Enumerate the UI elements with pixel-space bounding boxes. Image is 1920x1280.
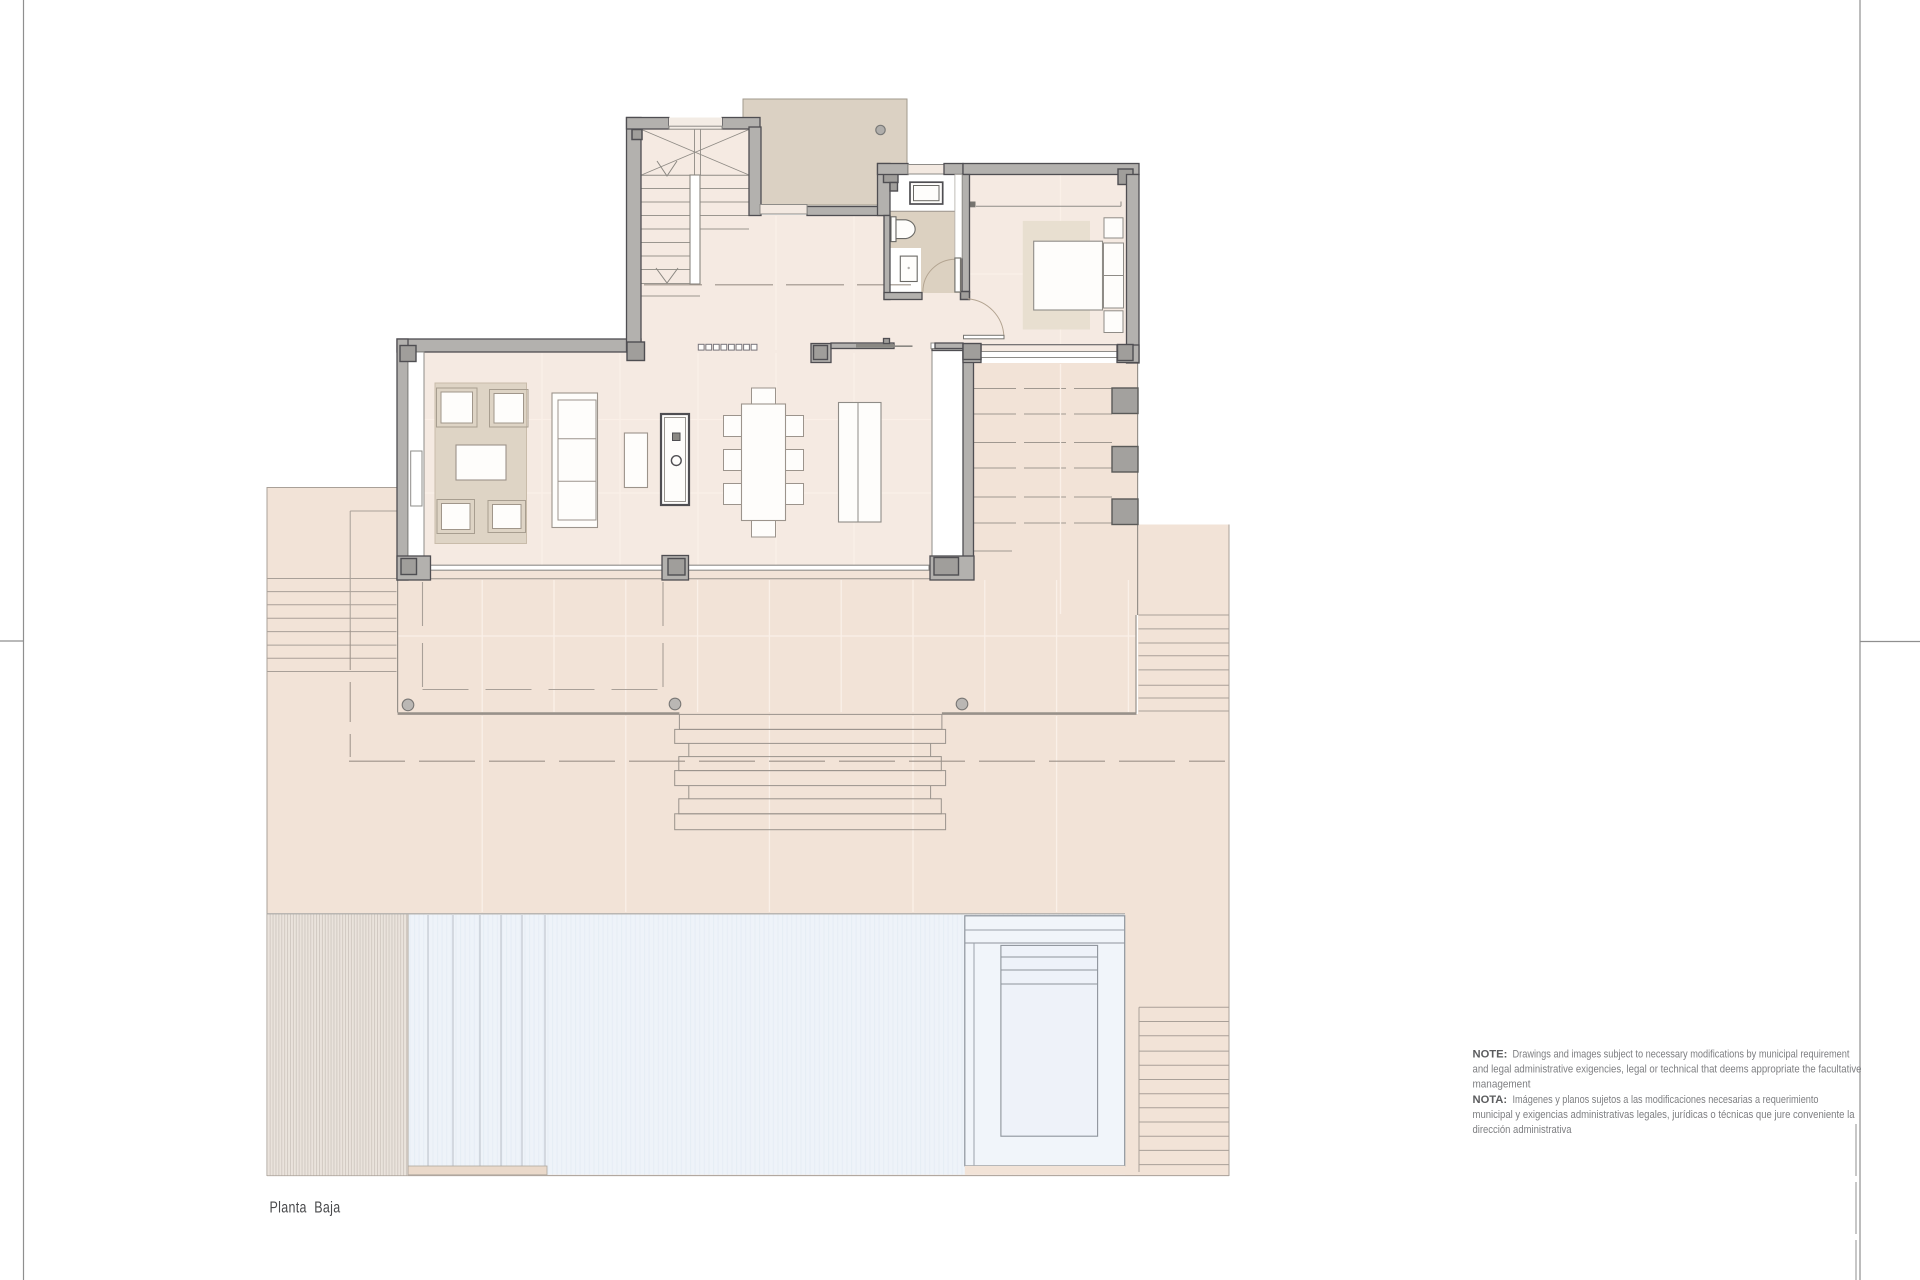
svg-text:NOTA:: NOTA: xyxy=(1473,1094,1508,1106)
svg-text:Drawings and images subject to: Drawings and images subject to necessary… xyxy=(1513,1049,1851,1061)
svg-text:municipal y exigencias adminis: municipal y exigencias administrativas l… xyxy=(1473,1109,1856,1121)
svg-text:dirección administrativa: dirección administrativa xyxy=(1473,1124,1573,1136)
svg-text:Planta Baja: Planta Baja xyxy=(270,1200,341,1217)
svg-text:management: management xyxy=(1473,1079,1532,1091)
svg-text:Imágenes y planos sujetos a la: Imágenes y planos sujetos a las modifica… xyxy=(1513,1094,1819,1106)
svg-text:NOTE:: NOTE: xyxy=(1473,1049,1508,1061)
svg-text:and legal administrative exige: and legal administrative exigencies, leg… xyxy=(1473,1064,1862,1076)
